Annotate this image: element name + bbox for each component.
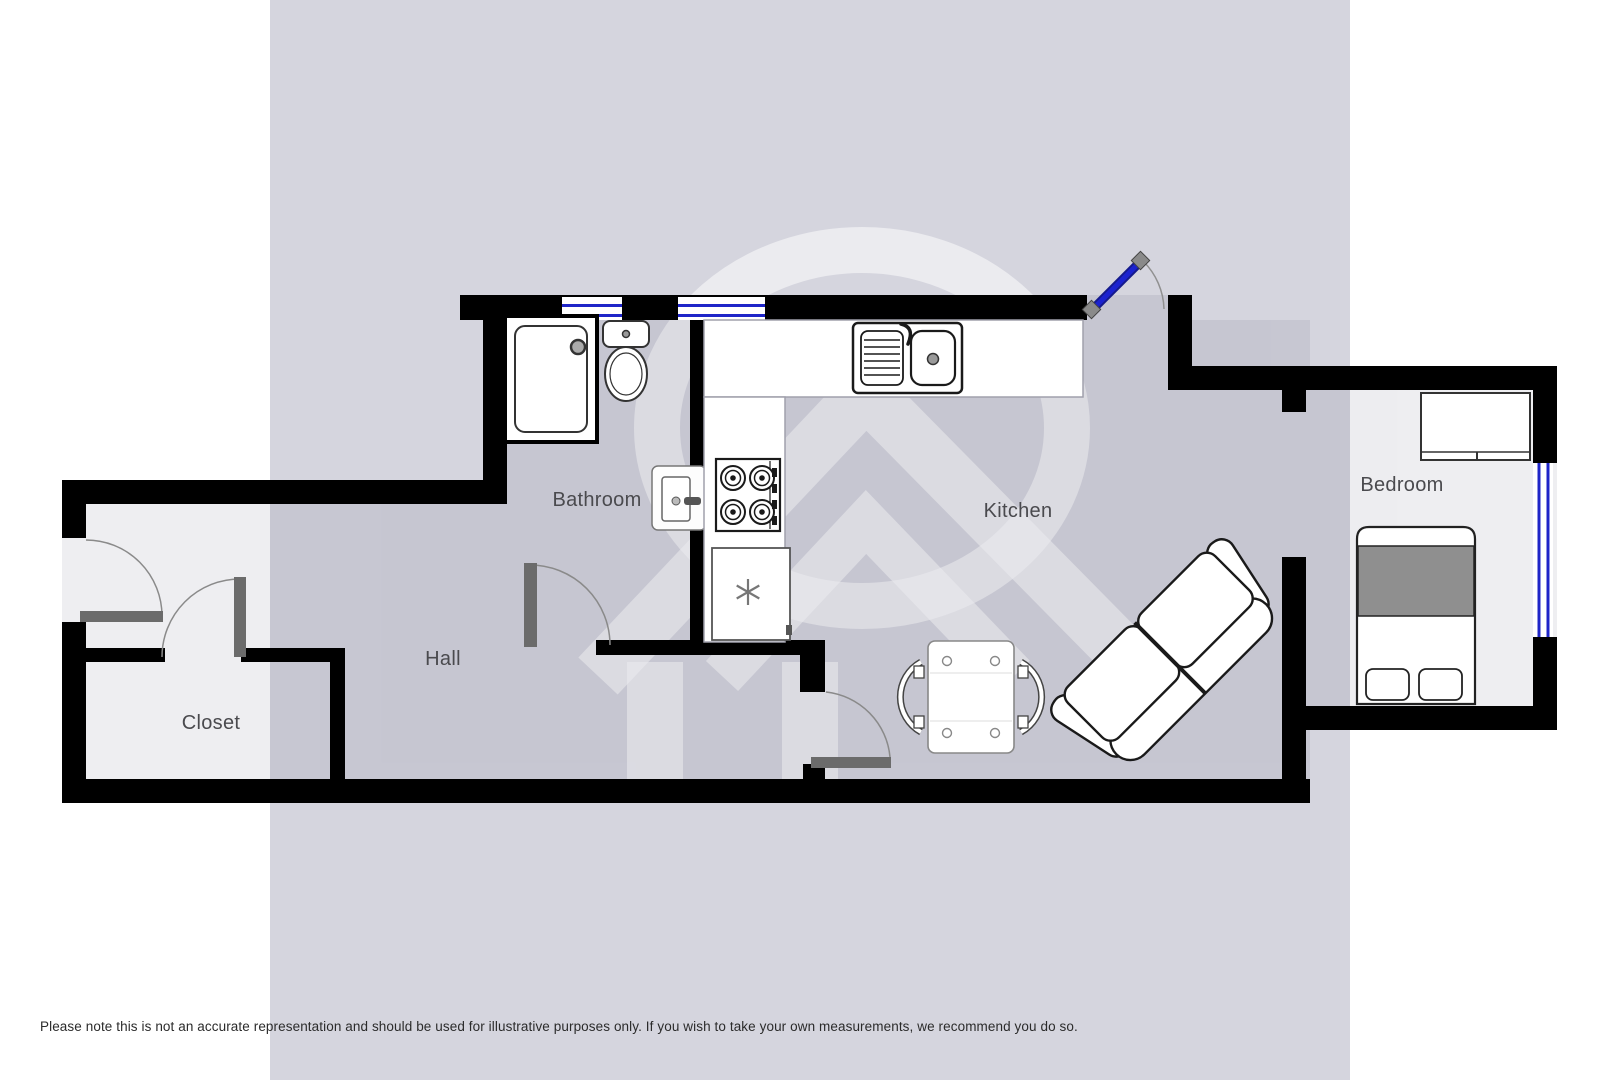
wall-segment: [330, 648, 345, 779]
bedroom-window-icon: [1533, 463, 1553, 637]
wall-segment: [1533, 390, 1557, 463]
washbasin-icon: [652, 466, 706, 530]
wall-segment: [1168, 295, 1192, 390]
wall-segment: [1192, 366, 1557, 390]
double-bed-icon: [1357, 527, 1475, 704]
pillow: [1419, 669, 1462, 700]
wall-segment: [1282, 557, 1306, 803]
wall-segment: [62, 480, 507, 504]
fridge-icon: [712, 548, 792, 640]
room-label-hall: Hall: [425, 648, 461, 670]
disclaimer-text: Please note this is not an accurate repr…: [40, 1019, 1078, 1034]
room-label-closet: Closet: [182, 712, 241, 734]
wall-segment: [800, 640, 825, 692]
wall-segment: [86, 648, 165, 662]
wall-segment: [1282, 390, 1306, 412]
kitchen-window-icon: [678, 297, 765, 320]
wall-segment: [62, 622, 86, 803]
wall-segment: [62, 779, 1310, 803]
duvet: [1358, 546, 1474, 616]
room-label-bedroom: Bedroom: [1360, 474, 1443, 496]
wall-segment: [1288, 706, 1557, 730]
wall-segment: [241, 648, 340, 662]
room-label-kitchen: Kitchen: [984, 500, 1053, 522]
room-label-bathroom: Bathroom: [552, 489, 641, 511]
toilet-icon: [603, 321, 649, 401]
dining-table-icon: [928, 641, 1014, 753]
pillow: [1366, 669, 1409, 700]
floorplan-page: { "floorplan": { "rooms": { "bathroom": …: [0, 0, 1620, 1080]
wardrobe-icon: [1421, 393, 1530, 460]
floorplan-canvas: Bathroom Kitchen Bedroom Hall Closet: [0, 0, 1620, 1080]
kitchen-sink-icon: [853, 323, 962, 393]
shower-icon: [505, 316, 597, 442]
hob-icon: [716, 459, 780, 531]
